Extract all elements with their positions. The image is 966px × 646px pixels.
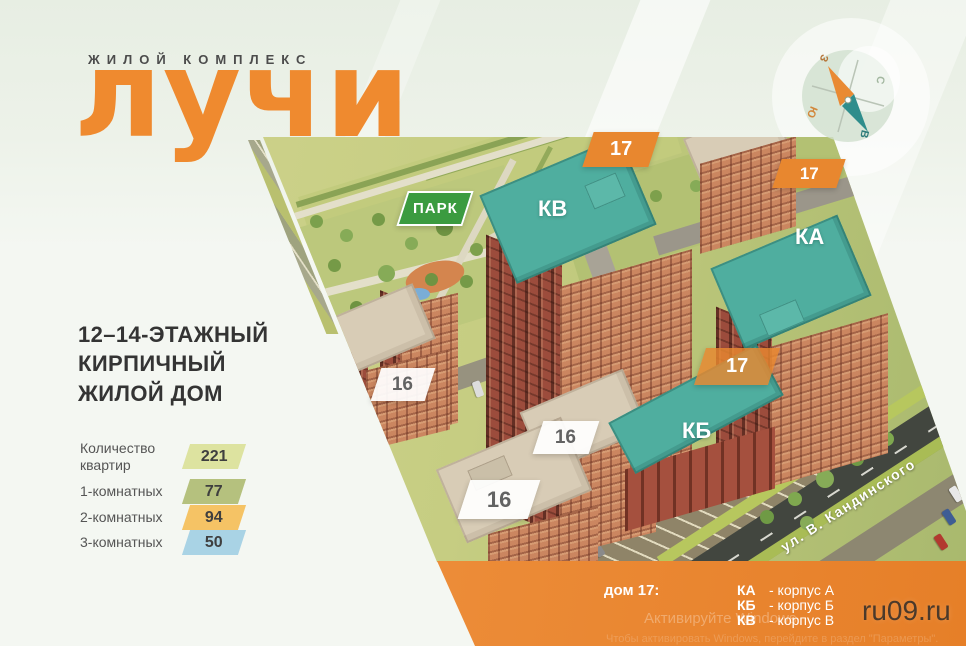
compass-needle-icon [800,48,896,144]
stat-label: 3-комнатных [80,534,182,551]
stat-value: 94 [205,509,223,527]
stat-label: Количество квартир [80,440,182,474]
stat-label: 2-комнатных [80,509,182,526]
stat-badge: 50 [182,530,246,555]
headline-line: ЖИЛОЙ ДОМ [78,379,268,408]
legend-code: КА [737,583,769,598]
trees [310,215,323,228]
stat-label: 1-комнатных [80,483,182,500]
headline-line: 12–14-ЭТАЖНЫЙ [78,320,268,349]
stat-value: 221 [201,448,228,466]
flyer-page: ЖИЛОЙ КОМПЛЕКС лучи З С Ю В 12–14-ЭТАЖНЫ… [0,0,966,646]
compass: З С Ю В [800,48,896,144]
stat-row-1room: 1-комнатных 77 [80,479,242,504]
stat-badge: 94 [182,505,246,530]
headline-line: КИРПИЧНЫЙ [78,349,268,378]
legend-title: дом 17: [604,582,659,599]
legend-bar: дом 17: КА - корпус А КБ - корпус Б КВ -… [0,561,966,646]
stat-badge: 77 [182,479,246,504]
legend-row: КА - корпус А [737,583,834,598]
trees [650,190,662,202]
car [955,463,966,481]
legend-name: - корпус А [769,583,834,598]
page-title: 12–14-ЭТАЖНЫЙ КИРПИЧНЫЙ ЖИЛОЙ ДОМ [78,320,268,408]
windows-activate-watermark: Активируйте Windows [644,610,796,627]
trees [760,510,774,524]
stat-row-2room: 2-комнатных 94 [80,505,242,530]
stat-badge: 221 [182,444,246,469]
site-watermark: ru09.ru [862,595,951,627]
stat-value: 50 [205,534,223,552]
stat-row-total: Количество квартир 221 [80,440,242,474]
stat-value: 77 [205,483,223,501]
windows-activate-watermark-line2: Чтобы активировать Windows, перейдите в … [606,633,938,645]
stat-row-3room: 3-комнатных 50 [80,530,242,555]
